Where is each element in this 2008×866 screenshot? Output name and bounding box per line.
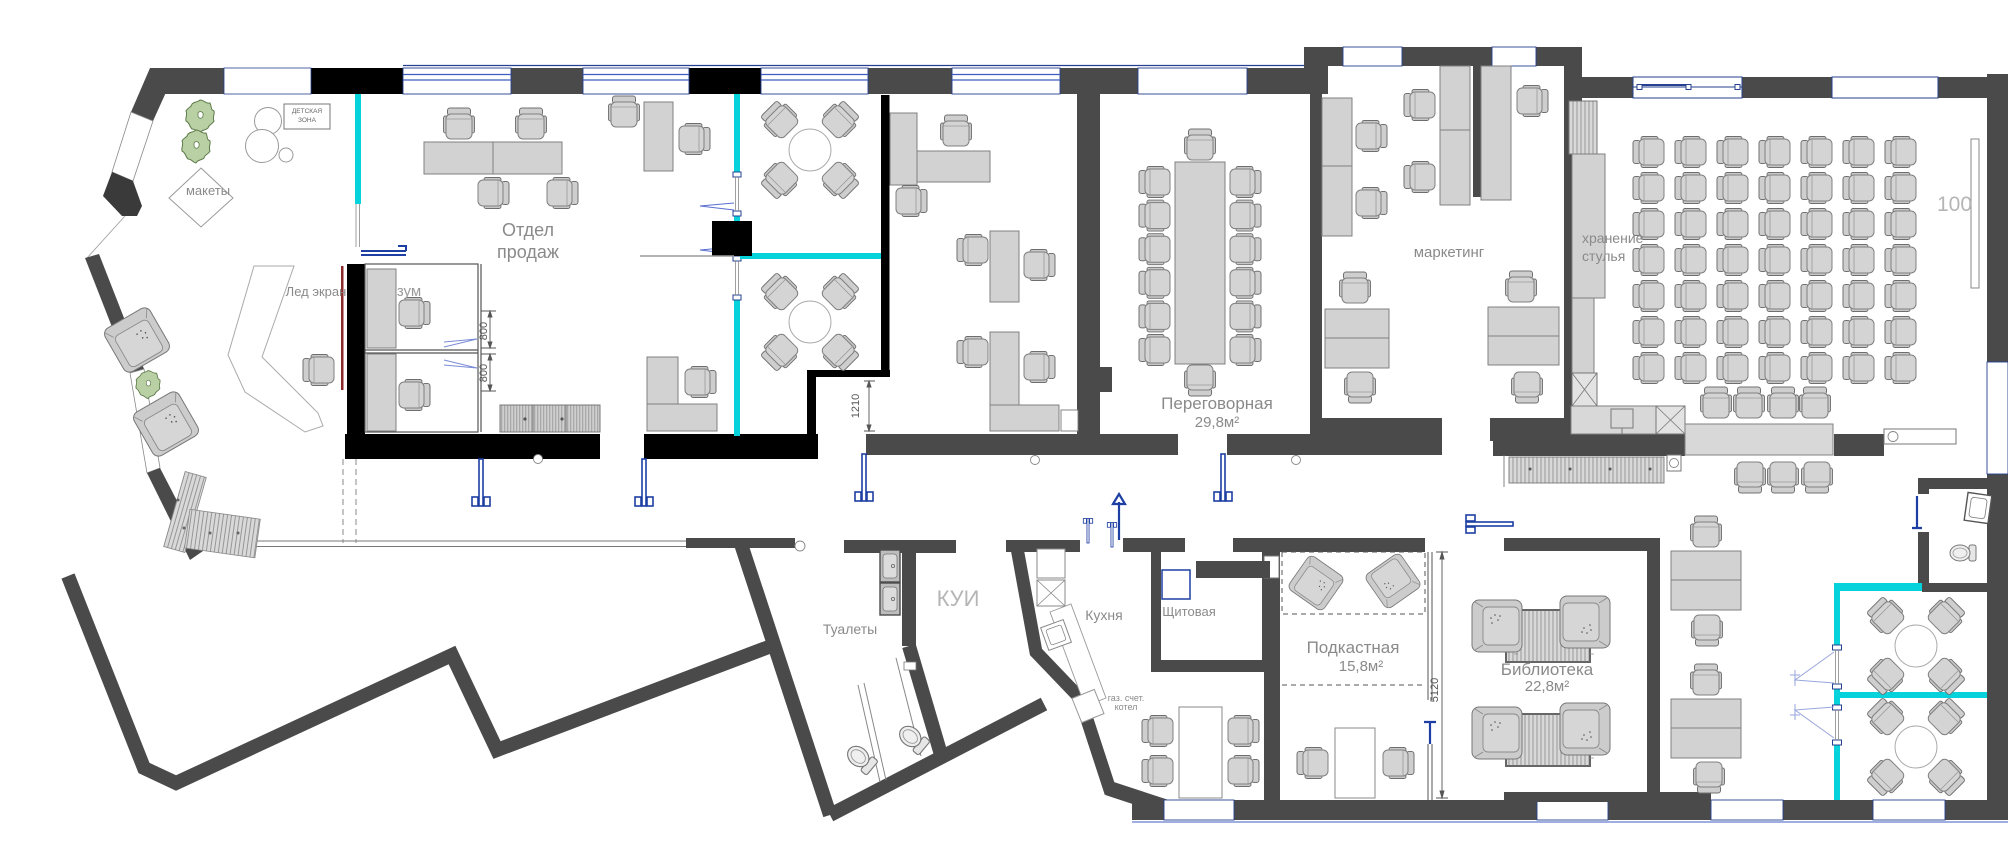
svg-text:800: 800 [478,364,490,382]
svg-text:1210: 1210 [850,394,862,418]
svg-text:маркетинг: маркетинг [1414,244,1485,261]
svg-text:15,8м²: 15,8м² [1339,658,1384,675]
svg-text:КУИ: КУИ [937,586,980,611]
svg-text:Переговорная: Переговорная [1161,394,1273,413]
svg-text:22,8м²: 22,8м² [1525,678,1570,695]
svg-text:Щитовая: Щитовая [1162,604,1216,619]
svg-text:100: 100 [1937,193,1972,216]
svg-text:котел: котел [1115,702,1138,712]
svg-text:Отдел: Отдел [502,220,554,240]
svg-text:800: 800 [478,322,490,340]
svg-text:Кухня: Кухня [1085,607,1122,623]
svg-text:Библиотека: Библиотека [1501,660,1594,679]
svg-text:хранение: хранение [1582,230,1644,246]
svg-text:Лед экран: Лед экран [286,284,347,299]
svg-text:макеты: макеты [186,183,230,198]
svg-text:зум: зум [397,283,421,300]
svg-text:ДЕТСКАЯ: ДЕТСКАЯ [292,108,323,115]
svg-text:стулья: стулья [1582,248,1625,264]
svg-text:5120: 5120 [1429,678,1441,702]
svg-text:ЗОНА: ЗОНА [298,117,317,124]
svg-text:Туалеты: Туалеты [823,621,877,637]
svg-text:продаж: продаж [497,242,559,262]
svg-text:Подкастная: Подкастная [1307,638,1400,657]
svg-text:29,8м²: 29,8м² [1195,414,1240,431]
